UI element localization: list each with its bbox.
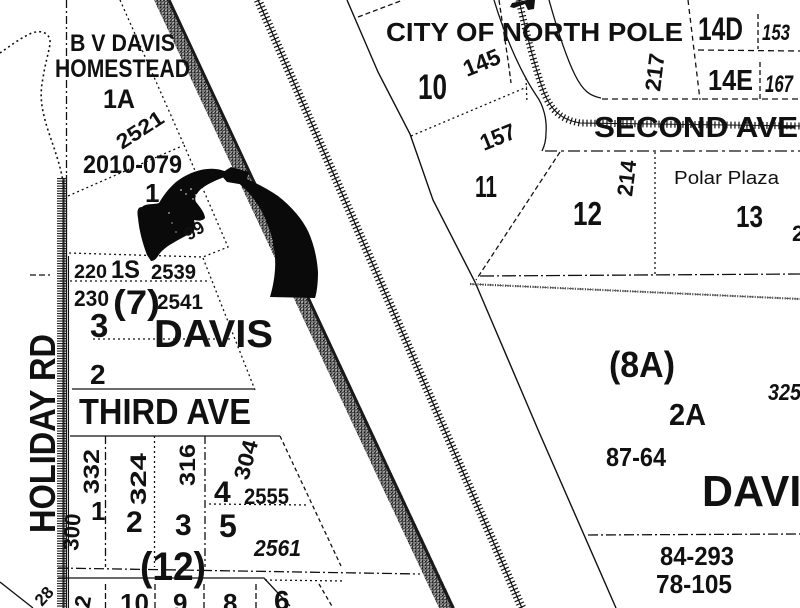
svg-text:10: 10 [418, 68, 447, 107]
svg-text:DAVIS: DAVIS [702, 467, 800, 516]
svg-text:Polar Plaza: Polar Plaza [674, 168, 780, 188]
svg-text:(12): (12) [140, 545, 206, 589]
svg-text:HOLIDAY RD: HOLIDAY RD [22, 334, 63, 533]
svg-text:214: 214 [612, 158, 641, 198]
svg-text:220: 220 [74, 262, 107, 283]
svg-text:12: 12 [573, 195, 602, 232]
svg-text:CITY OF NORTH POLE: CITY OF NORTH POLE [386, 17, 683, 47]
svg-text:332: 332 [79, 449, 104, 494]
svg-text:6: 6 [274, 585, 290, 608]
svg-text:325: 325 [768, 379, 800, 405]
svg-text:(8A): (8A) [609, 344, 675, 385]
svg-text:3: 3 [90, 307, 108, 344]
svg-text:217: 217 [640, 52, 669, 93]
svg-text:4: 4 [214, 476, 231, 509]
svg-text:78-105: 78-105 [656, 569, 732, 599]
svg-text:153: 153 [762, 20, 790, 45]
svg-text:2555: 2555 [244, 484, 289, 509]
svg-text:87-64: 87-64 [606, 442, 666, 472]
svg-text:HOMESTEAD: HOMESTEAD [55, 55, 190, 83]
svg-text:3: 3 [175, 509, 192, 542]
svg-text:1A: 1A [103, 84, 135, 114]
svg-text:11: 11 [475, 169, 497, 204]
svg-text:324: 324 [126, 452, 151, 505]
svg-text:8: 8 [223, 588, 237, 608]
svg-text:14E: 14E [708, 65, 753, 97]
svg-text:9: 9 [173, 588, 187, 608]
svg-text:10: 10 [120, 588, 149, 608]
svg-text:2561: 2561 [253, 535, 301, 561]
svg-text:1S: 1S [111, 256, 140, 284]
svg-text:300: 300 [58, 513, 86, 552]
svg-text:84-293: 84-293 [660, 541, 734, 571]
svg-text:13: 13 [736, 199, 763, 234]
svg-text:THIRD AVE: THIRD AVE [79, 391, 251, 432]
svg-text:5: 5 [219, 508, 237, 544]
svg-text:2539: 2539 [151, 261, 196, 284]
svg-text:2541: 2541 [157, 291, 203, 314]
svg-text:DAVIS: DAVIS [154, 313, 273, 356]
svg-text:(7): (7) [113, 284, 160, 322]
svg-text:2A: 2A [669, 397, 706, 432]
svg-text:316: 316 [175, 444, 200, 486]
svg-text:2010-079: 2010-079 [83, 151, 182, 179]
svg-text:2: 2 [126, 506, 143, 539]
svg-text:2: 2 [792, 221, 800, 246]
svg-text:SECOND AVE: SECOND AVE [594, 112, 798, 144]
svg-text:14D: 14D [698, 11, 743, 47]
svg-text:2: 2 [90, 359, 106, 390]
svg-text:167: 167 [765, 71, 794, 98]
svg-text:B V DAVIS: B V DAVIS [70, 30, 175, 57]
svg-text:1: 1 [91, 496, 105, 526]
